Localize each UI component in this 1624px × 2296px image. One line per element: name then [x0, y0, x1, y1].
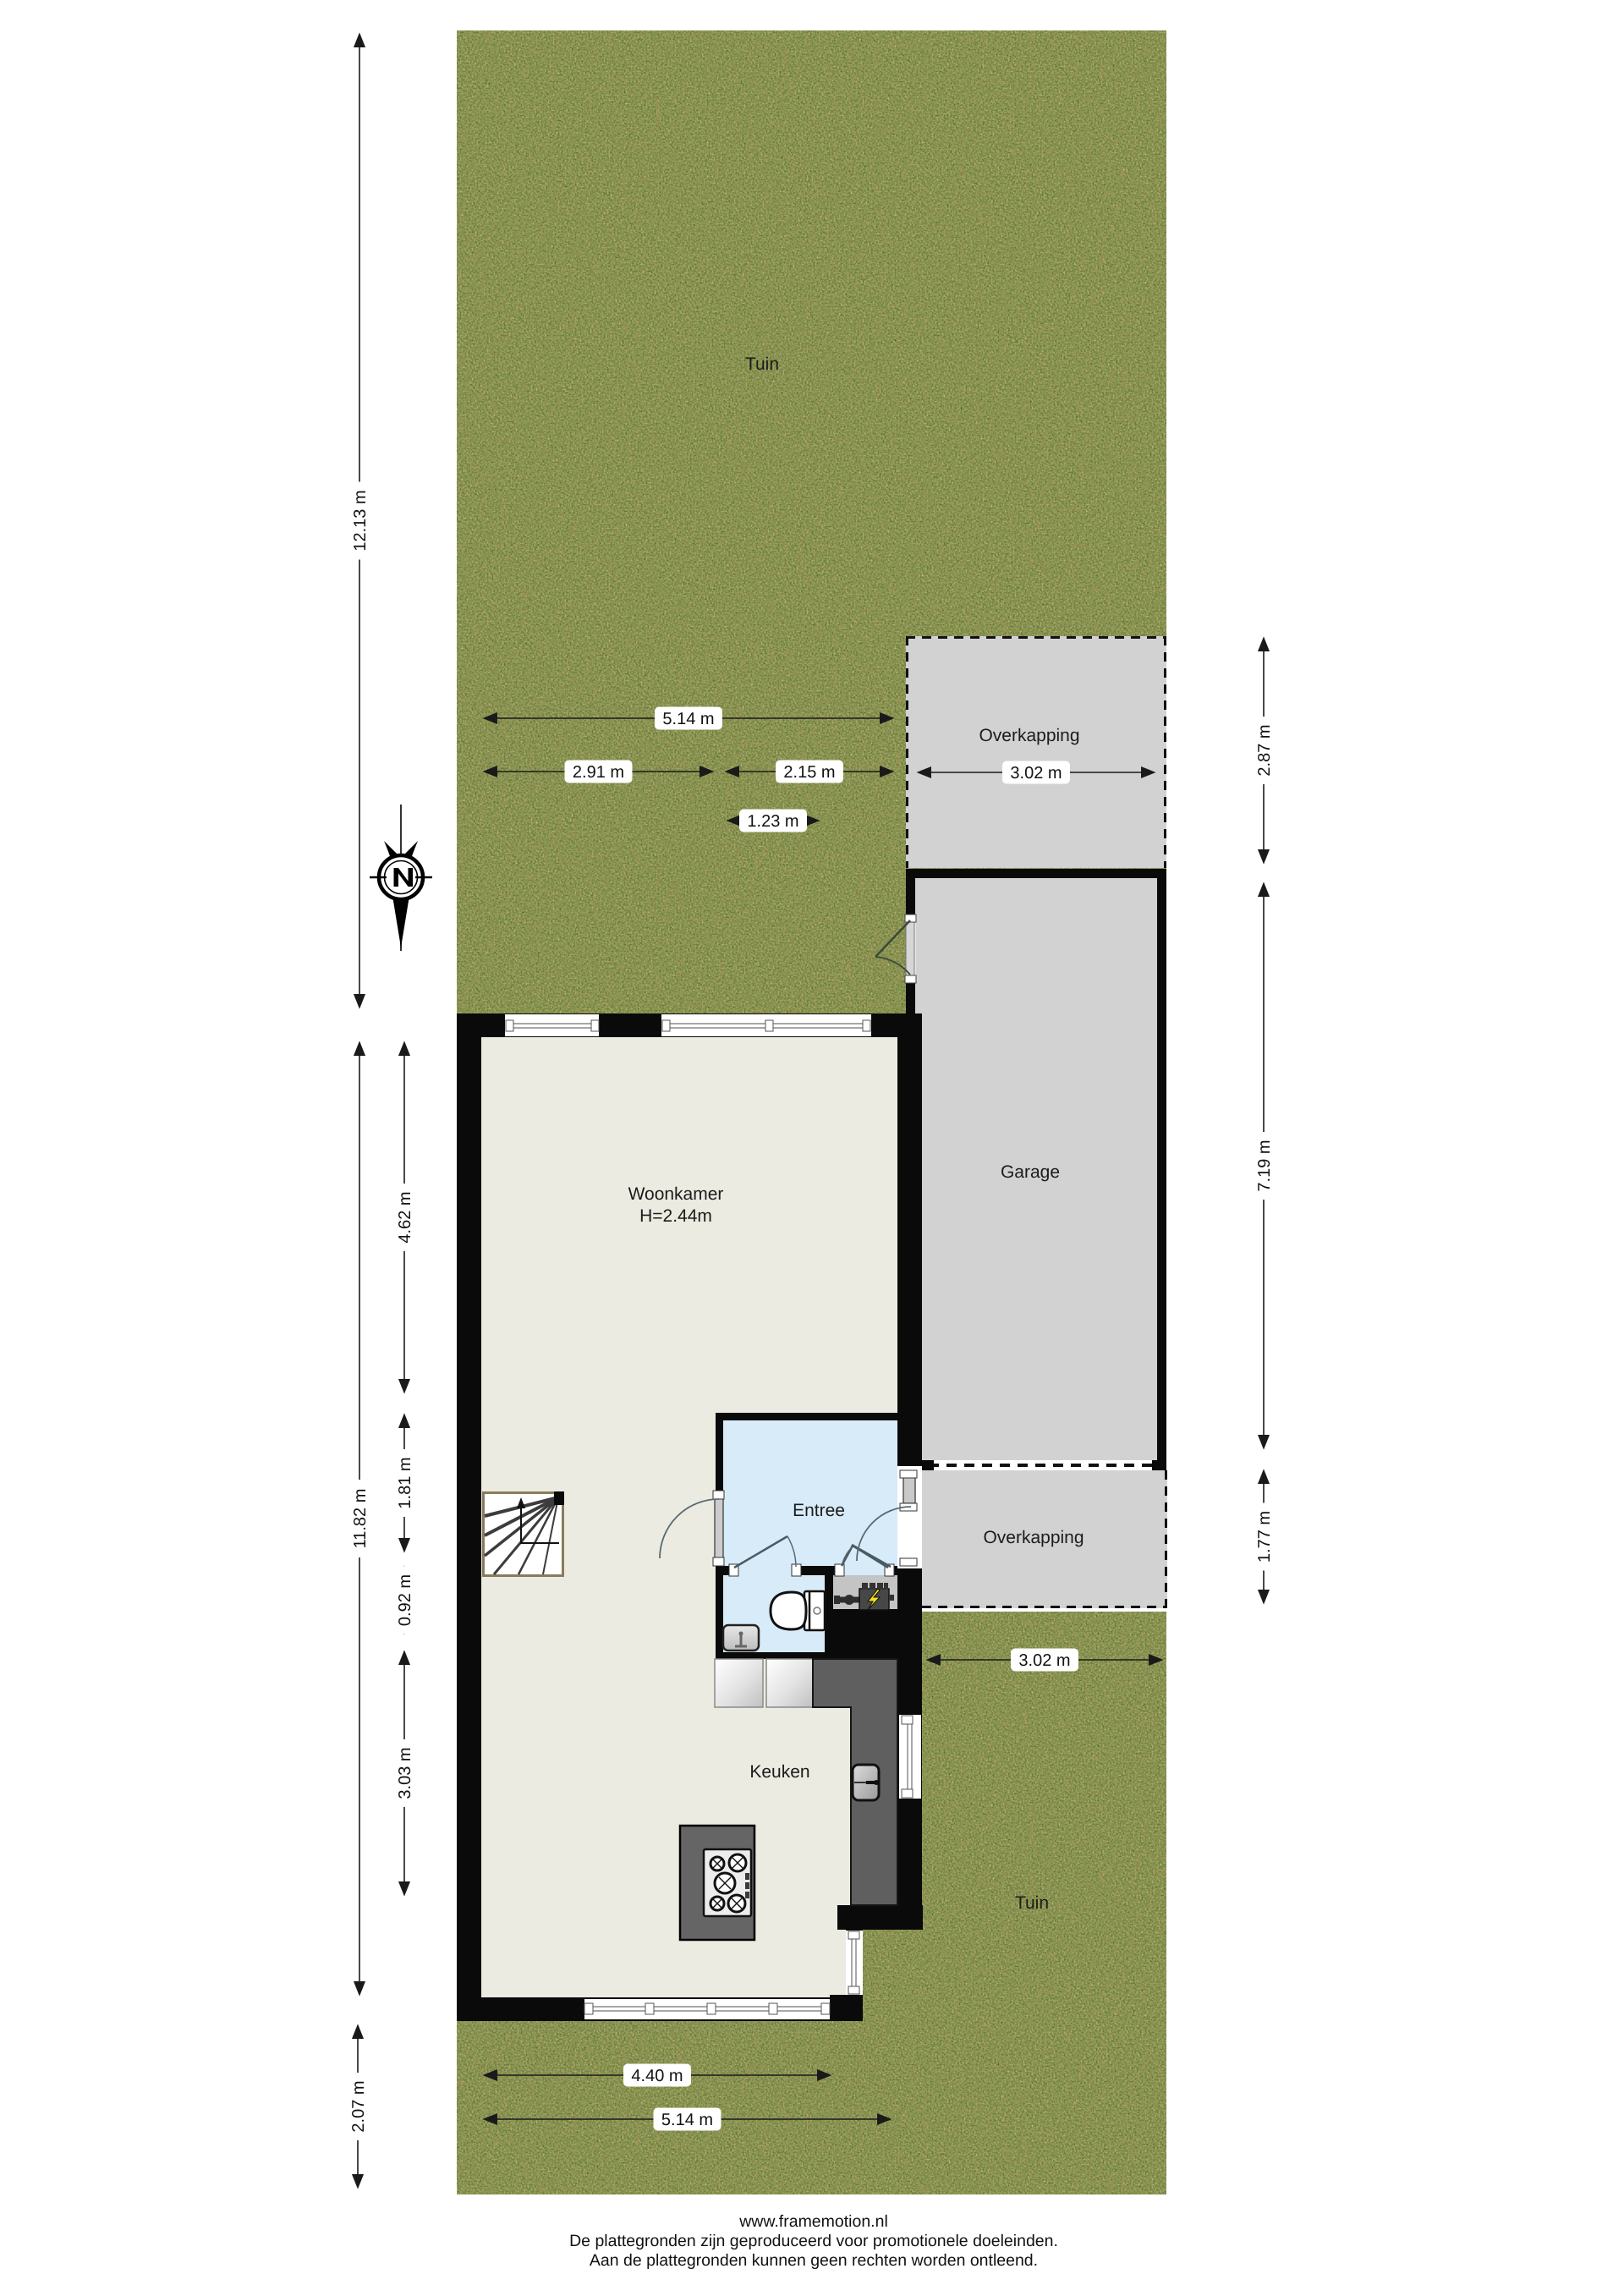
- svg-text:Overkapping: Overkapping: [979, 726, 1079, 745]
- svg-text:7.19 m: 7.19 m: [1255, 1140, 1274, 1191]
- svg-text:Keuken: Keuken: [749, 1762, 809, 1782]
- svg-text:0.92 m: 0.92 m: [396, 1574, 414, 1626]
- svg-text:5.14 m: 5.14 m: [662, 710, 714, 728]
- svg-text:1.77 m: 1.77 m: [1255, 1511, 1274, 1563]
- svg-text:3.02 m: 3.02 m: [1010, 764, 1062, 783]
- svg-text:4.40 m: 4.40 m: [631, 2067, 683, 2085]
- svg-text:2.15 m: 2.15 m: [783, 763, 835, 782]
- svg-text:1.23 m: 1.23 m: [747, 812, 798, 831]
- svg-text:3.03 m: 3.03 m: [396, 1747, 414, 1799]
- svg-text:5.14 m: 5.14 m: [661, 2111, 713, 2129]
- svg-text:1.81 m: 1.81 m: [396, 1457, 414, 1508]
- svg-text:Overkapping: Overkapping: [983, 1528, 1084, 1547]
- svg-text:2.07 m: 2.07 m: [349, 2080, 368, 2132]
- svg-text:Entree: Entree: [793, 1501, 845, 1520]
- svg-text:Woonkamer: Woonkamer: [628, 1184, 724, 1204]
- svg-text:12.13 m: 12.13 m: [351, 490, 370, 551]
- svg-text:www.framemotion.nl: www.framemotion.nl: [738, 2212, 888, 2231]
- svg-text:H=2.44m: H=2.44m: [639, 1206, 712, 1226]
- svg-text:Tuin: Tuin: [745, 354, 779, 374]
- svg-text:De plattegronden zijn geproduc: De plattegronden zijn geproduceerd voor …: [569, 2232, 1058, 2250]
- svg-text:2.91 m: 2.91 m: [573, 763, 624, 782]
- svg-text:4.62 m: 4.62 m: [396, 1191, 414, 1243]
- svg-text:Garage: Garage: [1001, 1162, 1060, 1182]
- svg-text:Aan de plattegronden kunnen ge: Aan de plattegronden kunnen geen rechten…: [590, 2251, 1038, 2270]
- svg-text:2.87 m: 2.87 m: [1255, 724, 1274, 776]
- svg-text:11.82 m: 11.82 m: [351, 1489, 370, 1549]
- svg-text:3.02 m: 3.02 m: [1018, 1651, 1070, 1670]
- svg-text:Tuin: Tuin: [1015, 1893, 1049, 1913]
